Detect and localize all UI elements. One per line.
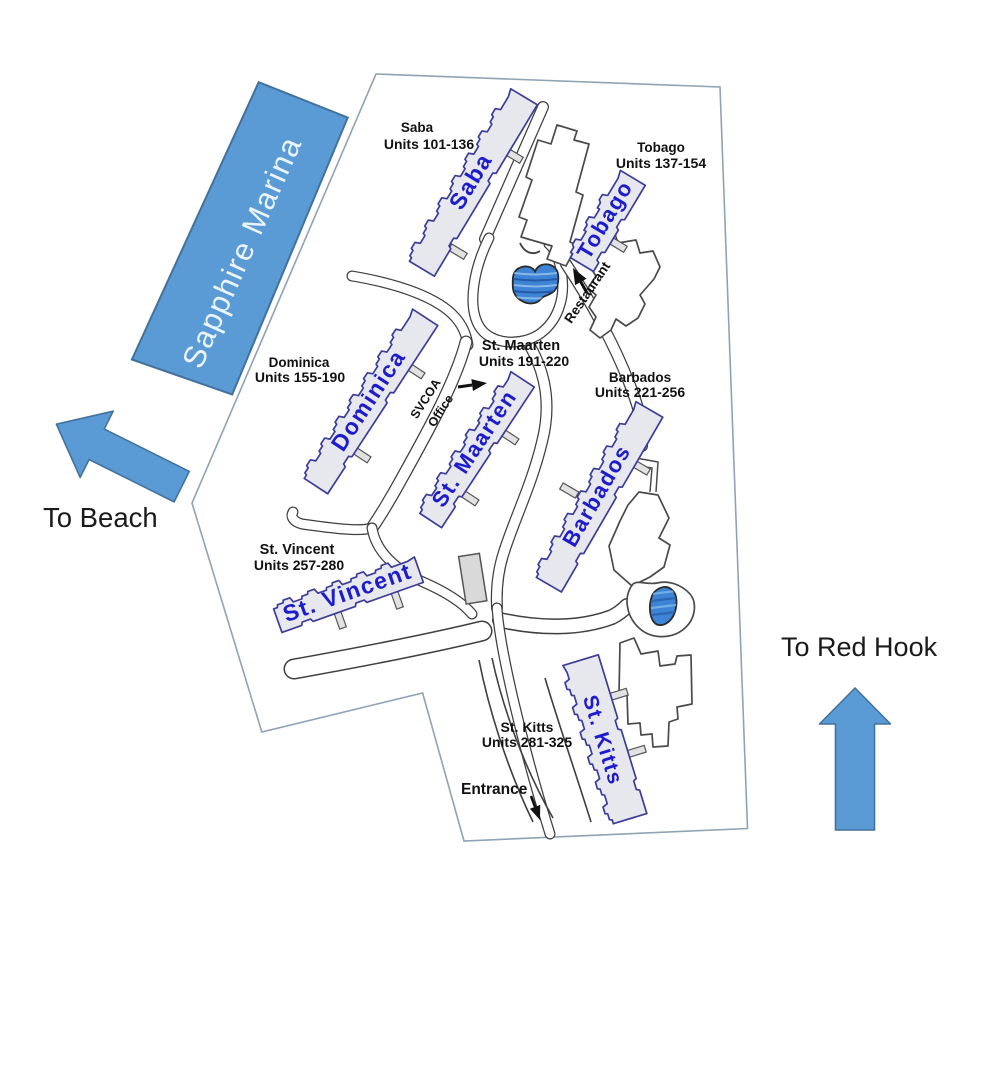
svg-text:To Beach: To Beach — [43, 502, 158, 533]
svg-text:Entrance: Entrance — [461, 781, 528, 798]
svg-text:Saba: Saba — [401, 120, 434, 135]
svg-text:Tobago: Tobago — [637, 140, 685, 155]
svg-text:Units 281-325: Units 281-325 — [482, 734, 572, 750]
svg-text:Units 101-136: Units 101-136 — [384, 136, 474, 152]
svg-text:Units 191-220: Units 191-220 — [479, 353, 569, 369]
svg-text:St. Kitts: St. Kitts — [501, 719, 554, 735]
svg-text:St. Vincent: St. Vincent — [260, 542, 335, 558]
svg-text:Units 221-256: Units 221-256 — [595, 384, 685, 400]
svg-text:To Red Hook: To Red Hook — [781, 632, 938, 662]
svg-text:Units 137-154: Units 137-154 — [616, 155, 706, 171]
svg-text:Units 257-280: Units 257-280 — [254, 557, 344, 573]
svg-text:Dominica: Dominica — [269, 355, 330, 370]
svg-text:Units 155-190: Units 155-190 — [255, 369, 345, 385]
svg-text:St. Maarten: St. Maarten — [482, 338, 560, 354]
svg-text:Barbados: Barbados — [609, 370, 671, 385]
